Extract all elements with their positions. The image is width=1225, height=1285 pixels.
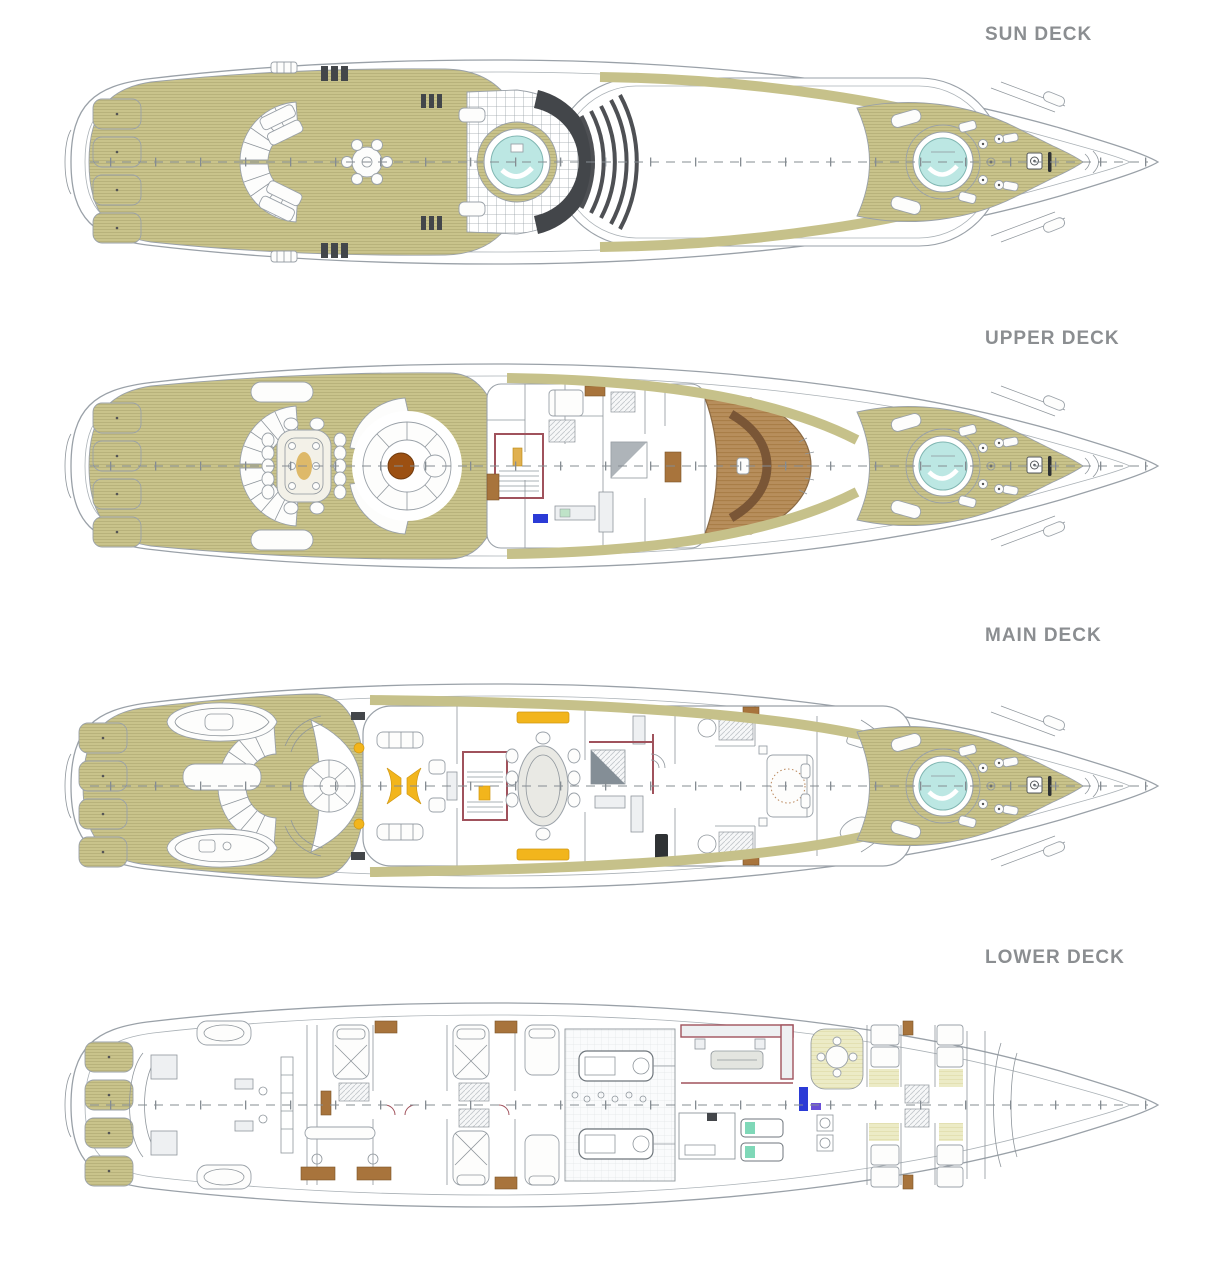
crew-mess <box>811 1029 863 1089</box>
control-room <box>679 1113 735 1159</box>
yacht-deck-plans-page: SUN DECK <box>0 0 1225 1285</box>
upper-deck-plan <box>55 356 1175 576</box>
stair-landing <box>611 442 647 478</box>
captain-cabin-bed <box>549 390 583 416</box>
lower-deck-label: LOWER DECK <box>985 947 1125 969</box>
upper-deck-label: UPPER DECK <box>985 328 1120 350</box>
sideboard <box>517 712 569 723</box>
locker-blue <box>799 1087 808 1111</box>
main-deck-plan <box>55 676 1175 896</box>
sun-deck-label: SUN DECK <box>985 24 1092 46</box>
main-deck-label: MAIN DECK <box>985 625 1102 647</box>
sun-deck-plan <box>55 52 1175 272</box>
lower-deck-plan <box>55 995 1175 1215</box>
pantry-unit <box>533 514 548 523</box>
